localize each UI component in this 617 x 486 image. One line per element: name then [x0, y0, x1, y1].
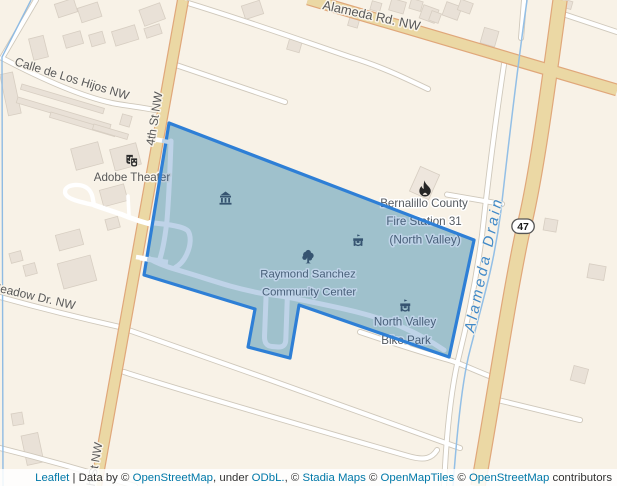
- svg-text:Leaflet | Data by © OpenStreet: Leaflet | Data by © OpenStreetMap, under…: [35, 472, 612, 484]
- svg-text:47: 47: [517, 221, 529, 233]
